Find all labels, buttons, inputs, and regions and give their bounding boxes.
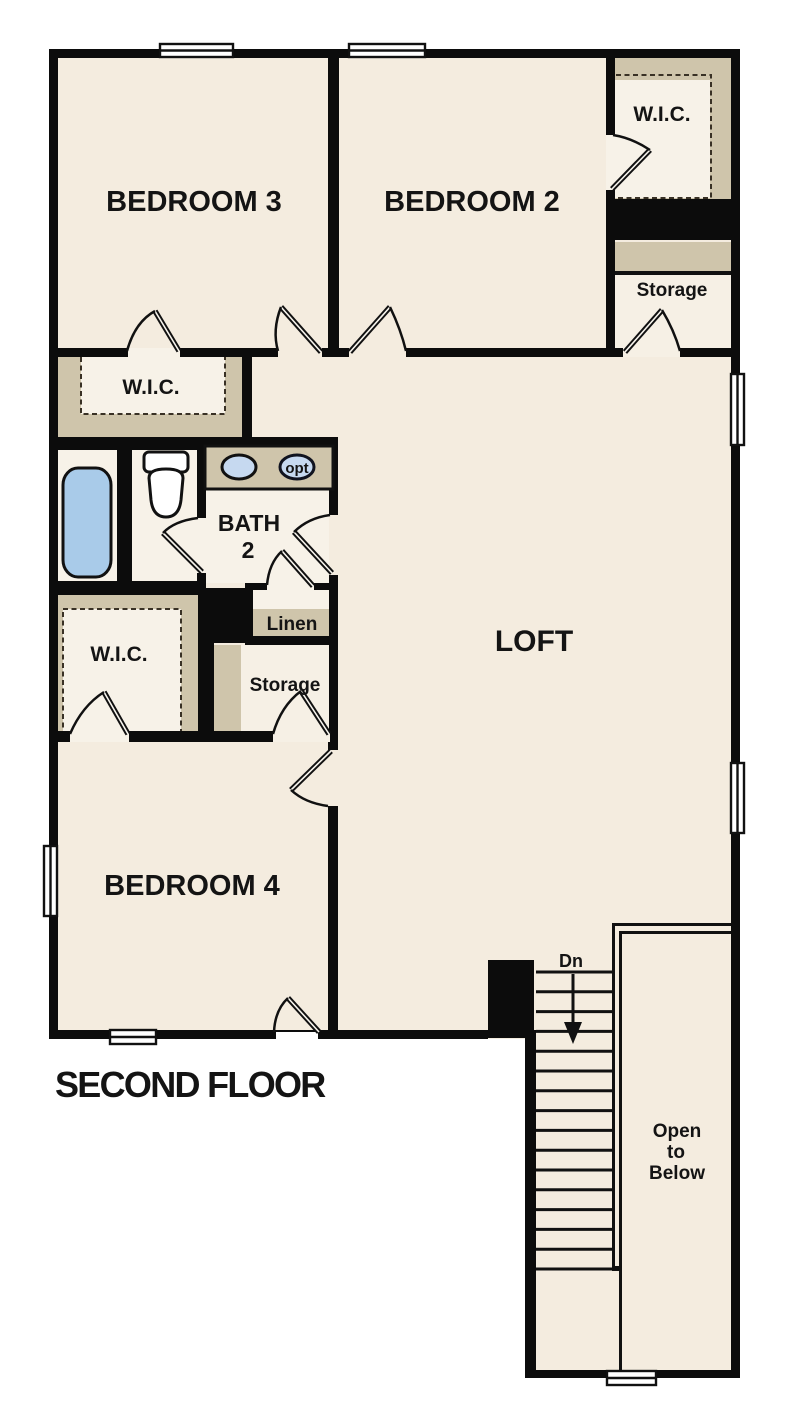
svg-text:SECOND FLOOR: SECOND FLOOR xyxy=(55,1064,326,1105)
svg-text:2: 2 xyxy=(242,537,255,563)
svg-text:W.I.C.: W.I.C. xyxy=(122,376,179,399)
svg-text:to: to xyxy=(667,1142,685,1163)
svg-text:BEDROOM 4: BEDROOM 4 xyxy=(104,870,280,902)
svg-text:W.I.C.: W.I.C. xyxy=(90,643,147,666)
svg-text:Linen: Linen xyxy=(267,614,318,635)
svg-text:Below: Below xyxy=(649,1163,705,1184)
svg-text:opt: opt xyxy=(285,460,308,477)
svg-text:Open: Open xyxy=(653,1121,702,1142)
svg-text:Dn: Dn xyxy=(559,951,583,971)
svg-text:Storage: Storage xyxy=(250,675,321,696)
svg-text:BATH: BATH xyxy=(218,510,280,536)
svg-text:BEDROOM 3: BEDROOM 3 xyxy=(106,186,282,218)
svg-text:W.I.C.: W.I.C. xyxy=(633,103,690,126)
svg-text:Storage: Storage xyxy=(637,280,708,301)
svg-text:BEDROOM 2: BEDROOM 2 xyxy=(384,186,560,218)
svg-text:LOFT: LOFT xyxy=(495,625,573,658)
